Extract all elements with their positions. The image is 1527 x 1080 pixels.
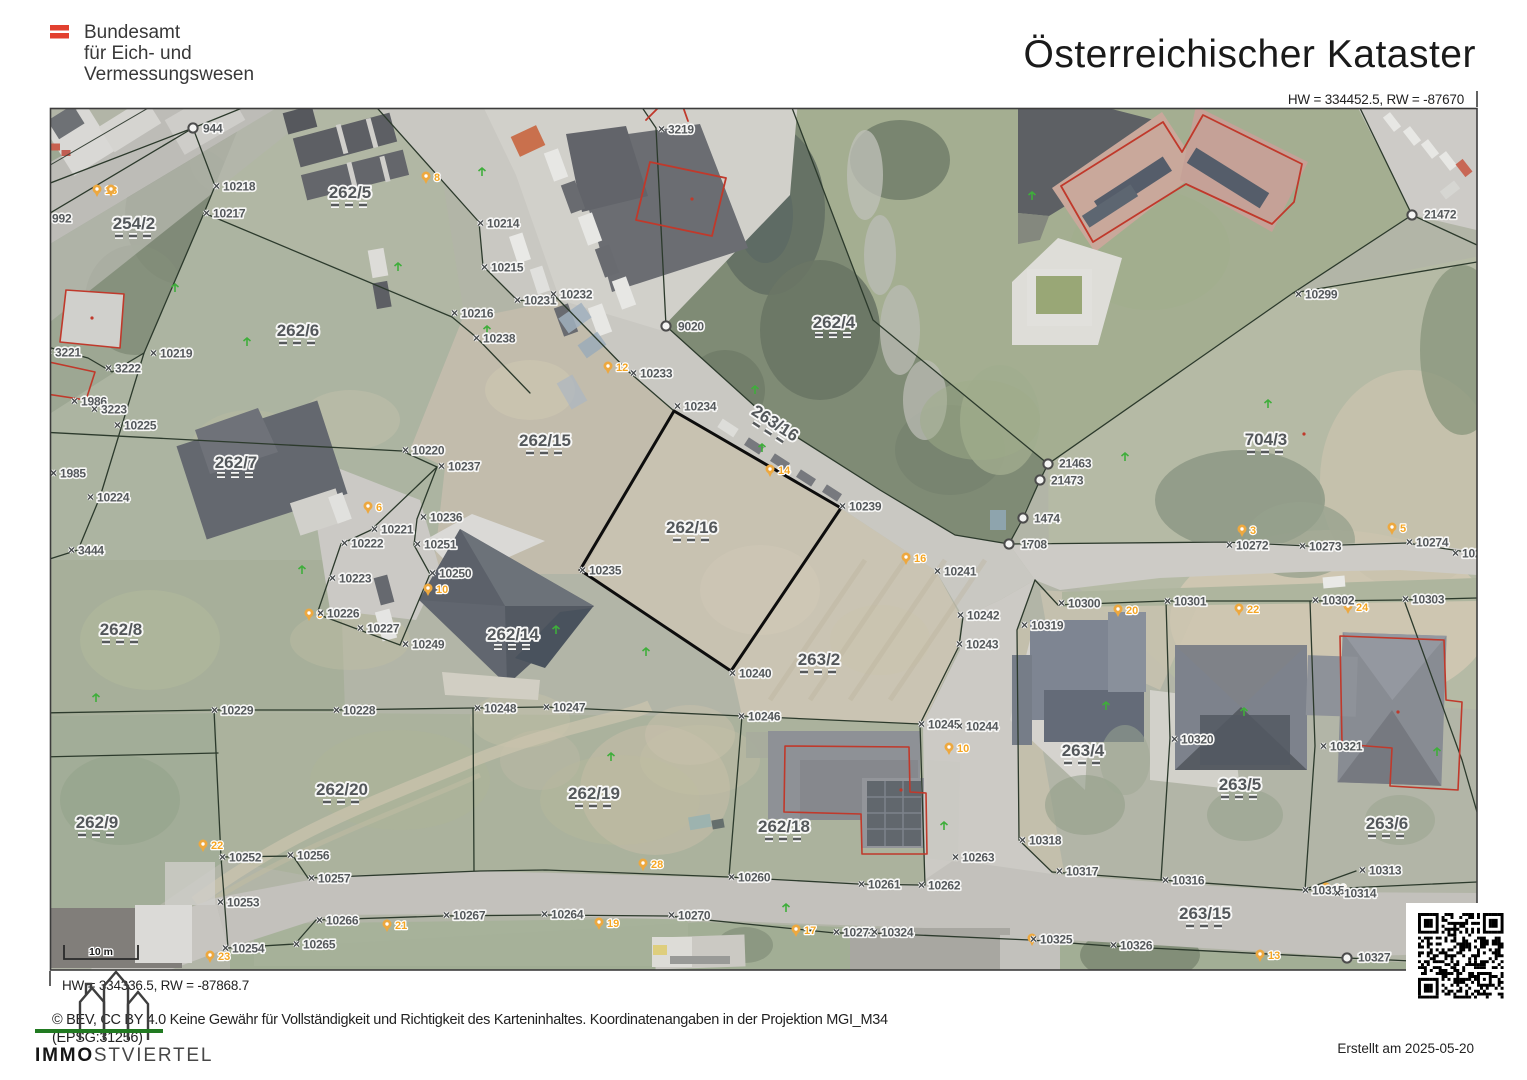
svg-text:262/20: 262/20 [316,780,368,799]
svg-text:1985: 1985 [60,467,86,481]
svg-text:10233: 10233 [640,367,673,381]
svg-text:10262: 10262 [928,879,961,893]
svg-text:10265: 10265 [303,938,336,952]
svg-text:HW = 334452.5, RW = -87670: HW = 334452.5, RW = -87670 [1288,92,1464,107]
svg-text:10: 10 [957,743,969,755]
svg-text:22: 22 [1247,604,1259,616]
svg-text:704/3: 704/3 [1245,430,1288,449]
svg-text:3444: 3444 [78,544,104,558]
svg-text:10320: 10320 [1181,733,1214,747]
svg-text:10253: 10253 [227,896,260,910]
svg-text:10216: 10216 [461,307,494,321]
svg-text:19: 19 [607,918,619,930]
svg-text:21463: 21463 [1059,457,1092,471]
svg-text:10249: 10249 [412,638,445,652]
svg-text:10313: 10313 [1369,864,1402,878]
svg-text:262/9: 262/9 [76,813,119,832]
svg-text:262/7: 262/7 [215,453,258,472]
svg-text:10317: 10317 [1066,865,1099,879]
svg-text:10314: 10314 [1344,887,1377,901]
svg-text:für Eich- und: für Eich- und [84,43,192,64]
svg-text:263/4: 263/4 [1062,741,1105,760]
svg-text:Bundesamt: Bundesamt [84,22,181,43]
svg-text:10236: 10236 [430,511,463,525]
svg-text:10321: 10321 [1330,740,1363,754]
svg-text:10: 10 [436,584,448,596]
svg-text:263/6: 263/6 [1366,814,1409,833]
svg-text:10232: 10232 [560,288,593,302]
svg-text:10235: 10235 [589,564,622,578]
svg-text:21472: 21472 [1424,208,1457,222]
svg-text:10228: 10228 [343,704,376,718]
svg-text:10326: 10326 [1120,939,1153,953]
svg-text:3219: 3219 [668,123,694,137]
svg-text:10266: 10266 [326,914,359,928]
svg-text:10242: 10242 [967,609,1000,623]
svg-text:10256: 10256 [297,849,330,863]
svg-text:6: 6 [376,502,382,514]
svg-text:10327: 10327 [1358,951,1391,965]
svg-text:10274: 10274 [1416,536,1449,550]
svg-text:1474: 1474 [1034,512,1060,526]
svg-text:262/6: 262/6 [277,321,320,340]
svg-text:10225: 10225 [124,419,157,433]
svg-text:12: 12 [616,362,628,374]
svg-text:3222: 3222 [115,362,141,376]
svg-text:3223: 3223 [101,403,127,417]
svg-text:10224: 10224 [97,491,130,505]
svg-text:262/8: 262/8 [100,620,143,639]
svg-text:10301: 10301 [1174,595,1207,609]
svg-text:10254: 10254 [232,942,265,956]
svg-text:10260: 10260 [738,871,771,885]
svg-text:10245: 10245 [928,718,961,732]
svg-text:10243: 10243 [966,638,999,652]
svg-text:10247: 10247 [553,701,586,715]
svg-text:10221: 10221 [381,523,414,537]
svg-text:21: 21 [395,920,407,932]
svg-text:992: 992 [52,212,72,226]
svg-text:10251: 10251 [424,538,457,552]
svg-text:10217: 10217 [213,207,246,221]
svg-text:14: 14 [778,465,791,477]
svg-text:10219: 10219 [160,347,193,361]
svg-text:IMMOSTVIERTEL: IMMOSTVIERTEL [35,1045,213,1066]
svg-text:10319: 10319 [1031,619,1064,633]
svg-text:10299: 10299 [1305,288,1338,302]
svg-text:10302: 10302 [1322,594,1355,608]
svg-text:17: 17 [804,925,816,937]
svg-text:262/16: 262/16 [666,518,718,537]
svg-text:10220: 10220 [412,444,445,458]
svg-text:8: 8 [434,172,440,184]
svg-text:10325: 10325 [1040,933,1073,947]
svg-text:10267: 10267 [453,909,486,923]
svg-text:262/18: 262/18 [758,817,810,836]
svg-text:5: 5 [1400,523,1406,535]
svg-text:263/2: 263/2 [798,650,841,669]
svg-text:10324: 10324 [881,926,914,940]
svg-text:262/19: 262/19 [568,784,620,803]
svg-text:10303: 10303 [1412,593,1445,607]
svg-text:16: 16 [914,553,926,565]
svg-text:10222: 10222 [351,537,384,551]
svg-text:3221: 3221 [55,346,81,360]
svg-text:10241: 10241 [944,565,977,579]
svg-text:10264: 10264 [551,908,584,922]
svg-text:10229: 10229 [221,704,254,718]
svg-text:10244: 10244 [966,720,999,734]
svg-text:10261: 10261 [868,878,901,892]
svg-text:263/15: 263/15 [1179,904,1231,923]
svg-text:262/15: 262/15 [519,431,571,450]
svg-text:10237: 10237 [448,460,481,474]
svg-text:10238: 10238 [483,332,516,346]
svg-text:262/4: 262/4 [813,313,856,332]
svg-text:10273: 10273 [1309,540,1342,554]
svg-text:Erstellt am 2025-05-20: Erstellt am 2025-05-20 [1337,1041,1474,1056]
svg-text:Vermessungswesen: Vermessungswesen [84,64,254,85]
svg-text:262/5: 262/5 [329,183,372,202]
svg-text:23: 23 [218,951,230,963]
svg-text:9020: 9020 [678,320,704,334]
svg-text:10246: 10246 [748,710,781,724]
svg-text:10270: 10270 [678,909,711,923]
svg-text:10240: 10240 [739,667,772,681]
svg-text:© BEV, CC BY 4.0 Keine Gewähr: © BEV, CC BY 4.0 Keine Gewähr für Vollst… [52,1012,888,1028]
svg-text:10 m: 10 m [89,946,113,958]
svg-text:10218: 10218 [223,180,256,194]
svg-text:20: 20 [1126,605,1138,617]
svg-text:10248: 10248 [484,702,517,716]
svg-text:10316: 10316 [1172,874,1205,888]
svg-text:24: 24 [1356,602,1369,614]
svg-text:944: 944 [203,122,223,136]
svg-text:3: 3 [1250,525,1256,537]
svg-text:10318: 10318 [1029,834,1062,848]
svg-text:21473: 21473 [1051,474,1084,488]
svg-text:10214: 10214 [487,217,520,231]
svg-text:Österreichischer Kataster: Österreichischer Kataster [1024,33,1477,76]
svg-text:10227: 10227 [367,622,400,636]
svg-text:254/2: 254/2 [113,214,156,233]
svg-text:10257: 10257 [318,872,351,886]
svg-text:10271: 10271 [843,926,876,940]
svg-text:10300: 10300 [1068,597,1101,611]
svg-text:10239: 10239 [849,500,882,514]
svg-text:1708: 1708 [1021,538,1047,552]
svg-text:10250: 10250 [439,567,472,581]
svg-text:10234: 10234 [684,400,717,414]
svg-text:10215: 10215 [491,261,524,275]
svg-text:22: 22 [211,840,223,852]
svg-text:10272: 10272 [1236,539,1269,553]
svg-text:263/5: 263/5 [1219,775,1262,794]
svg-text:28: 28 [651,859,663,871]
svg-text:10263: 10263 [962,851,995,865]
svg-text:10223: 10223 [339,572,372,586]
svg-text:10226: 10226 [327,607,360,621]
svg-text:262/14: 262/14 [487,625,540,644]
svg-text:10252: 10252 [229,851,262,865]
svg-text:13: 13 [1268,950,1280,962]
